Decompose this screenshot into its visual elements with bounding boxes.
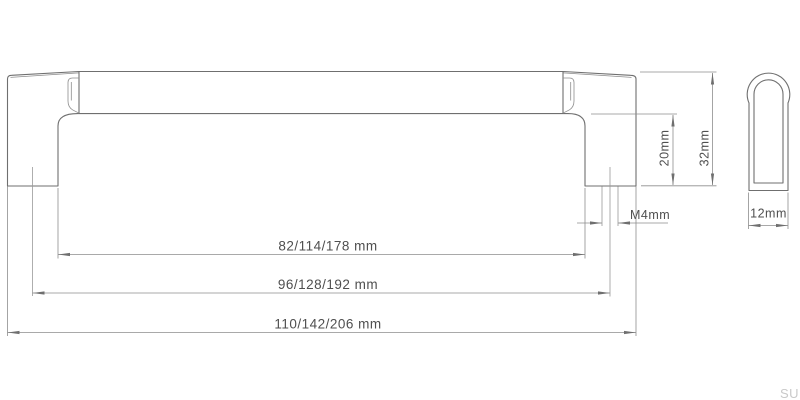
- side-view: [747, 73, 790, 190]
- technical-drawing: 82/114/178 mm 96/128/192 mm 110/142/206 …: [0, 0, 800, 400]
- arrowhead-left: [749, 224, 761, 227]
- arrowhead-left: [33, 291, 45, 294]
- arrowhead-right: [598, 291, 610, 294]
- arrowhead-right: [573, 253, 585, 256]
- watermark-text: SU: [780, 386, 799, 400]
- arrowhead-right: [776, 224, 788, 227]
- arrowhead-right: [590, 221, 602, 224]
- dim-label-post-height: 20mm: [658, 130, 672, 167]
- right-cap-inner-detail: [563, 78, 574, 113]
- handle-outline: [8, 72, 637, 187]
- dim-screw-thread: M4mm: [577, 208, 670, 225]
- left-cap-inner-detail: [68, 78, 79, 113]
- arrowhead-up: [671, 115, 674, 127]
- dim-label-screw-thread: M4mm: [630, 208, 670, 222]
- dim-label-inner-length: 82/114/178 mm: [278, 239, 377, 254]
- dim-overall-length: 110/142/206 mm: [8, 187, 637, 337]
- side-inner-profile: [754, 80, 783, 183]
- arrowhead-left: [618, 221, 630, 224]
- front-view: [8, 72, 637, 297]
- arrowhead-left: [8, 331, 20, 334]
- dim-label-depth: 12mm: [750, 207, 787, 221]
- drawing-canvas: 82/114/178 mm 96/128/192 mm 110/142/206 …: [0, 0, 800, 400]
- arrowhead-down: [671, 174, 674, 186]
- arrowhead-left: [58, 253, 70, 256]
- dim-hole-spacing: 96/128/192 mm: [33, 277, 611, 295]
- dim-label-overall-height: 32mm: [698, 130, 712, 167]
- dim-overall-height: 32mm: [640, 72, 717, 186]
- dim-depth: 12mm: [749, 193, 789, 230]
- dim-inner-length: 82/114/178 mm: [58, 188, 585, 259]
- arrowhead-down: [711, 174, 714, 186]
- dim-label-overall-length: 110/142/206 mm: [274, 317, 381, 332]
- arrowhead-up: [711, 73, 714, 85]
- dim-label-hole-spacing: 96/128/192 mm: [278, 277, 378, 292]
- arrowhead-right: [624, 331, 636, 334]
